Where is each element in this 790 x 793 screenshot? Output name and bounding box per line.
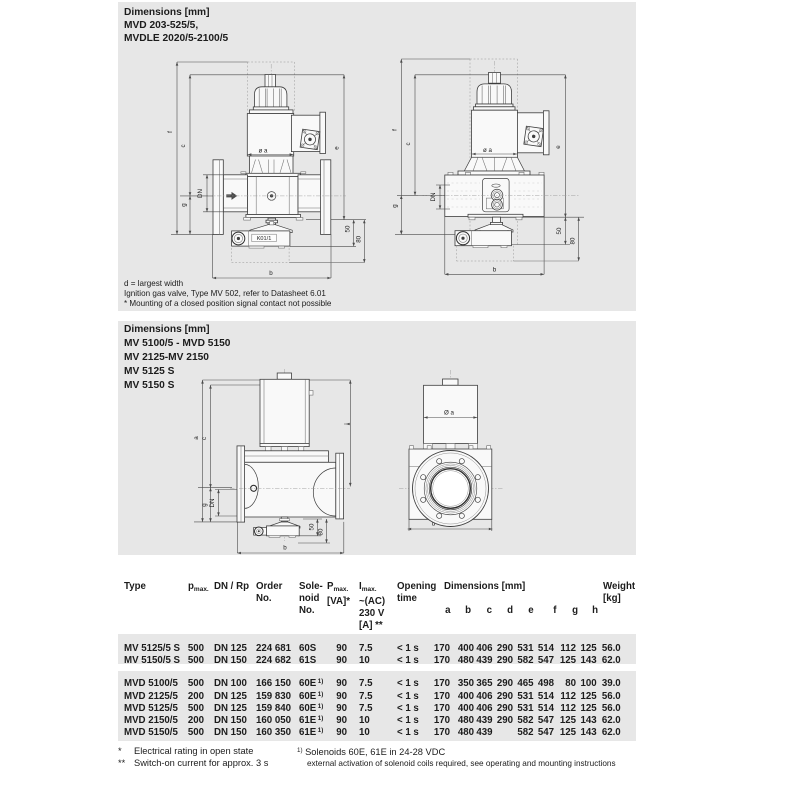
svg-text:f: f (167, 131, 174, 133)
svg-text:80: 80 (318, 528, 325, 535)
svg-text:b: b (493, 266, 497, 273)
svg-text:80: 80 (355, 235, 362, 242)
svg-text:b: b (283, 544, 287, 551)
svg-text:g: g (181, 203, 188, 207)
svg-text:c: c (180, 144, 187, 147)
svg-text:ø a: ø a (259, 148, 268, 155)
svg-text:50: 50 (308, 523, 315, 530)
svg-text:g: g (201, 503, 208, 507)
svg-text:DN: DN (209, 499, 216, 508)
svg-text:50: 50 (556, 227, 563, 234)
svg-text:g: g (391, 204, 398, 208)
svg-text:ø a: ø a (483, 147, 492, 154)
svg-text:50: 50 (345, 225, 352, 232)
svg-text:f: f (391, 129, 398, 131)
svg-text:Ø a: Ø a (444, 410, 455, 417)
svg-text:e: e (555, 145, 562, 149)
svg-text:a: a (193, 436, 200, 440)
svg-text:K01/1: K01/1 (257, 236, 272, 242)
svg-text:80: 80 (569, 237, 576, 244)
svg-text:e: e (334, 146, 341, 150)
svg-text:DN: DN (197, 189, 204, 198)
svg-text:c: c (405, 142, 412, 145)
svg-text:c: c (201, 437, 208, 440)
svg-text:b: b (269, 270, 273, 277)
svg-text:DN: DN (430, 193, 437, 202)
